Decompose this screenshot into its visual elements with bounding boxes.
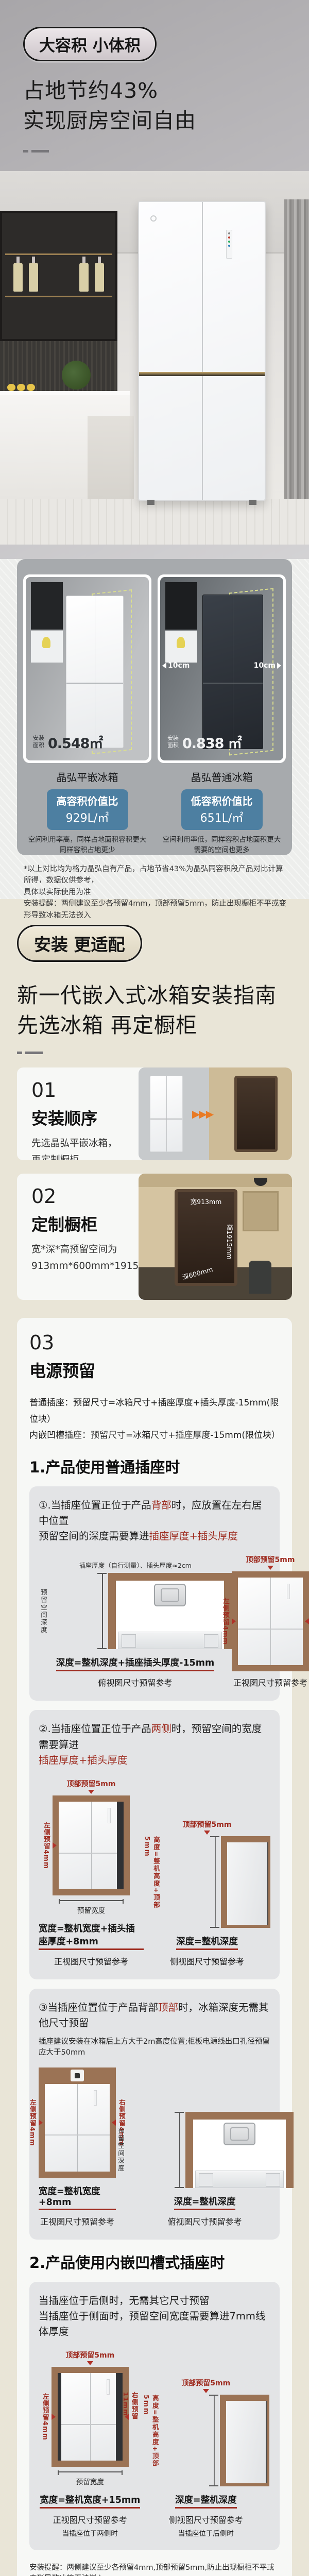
niche-height-label: 高1915mm — [225, 1224, 234, 1260]
step2-image: 宽913mm 高1915mm 深600mm — [139, 1174, 292, 1300]
cabinet-front-view: 左侧预留4mm 右侧预留4mm — [39, 2067, 116, 2178]
cabinet-niche — [234, 1076, 278, 1152]
triangle-marker-icon — [305, 1618, 309, 1624]
case3-note: 插座建议安装在冰箱后上方大于2m高度位置;柜板电源线出口孔径预留应大于50mm — [39, 2036, 270, 2057]
compare-section: 安装 面积 0.548㎡ 晶弘平嵌冰箱 高容积价值比 929L/㎡ 空间利用率高… — [0, 559, 309, 899]
triangle-down-icon — [87, 2361, 93, 2365]
cabinet-front-view: 左侧预留4mm 右侧预留11mm — [51, 2367, 129, 2467]
hero-title-line1: 占地节约43% — [23, 76, 286, 106]
socket-icon — [154, 1584, 186, 1606]
step-card-02: 02 定制橱柜 宽*深*高预留空间为 913mm*600mm*1915mm 宽9… — [17, 1174, 292, 1300]
top-gap-label: 顶部预留5mm — [67, 1778, 116, 1789]
depth-formula: 深度=整机深度+插座插头厚度-15mm — [56, 1656, 214, 1671]
cabinet-top-view — [185, 2112, 294, 2188]
top-gap-label: 顶部预留5mm — [246, 1554, 295, 1565]
socket-case-4: 当插座位于后侧时，无需其它尺寸预留 当插座位于侧面时，预留空间宽度需要算进7mm… — [29, 2282, 280, 2551]
socket-thickness-note: 插座厚度（自行测量）、插头厚度≈2cm — [79, 1560, 192, 1570]
width-formula: 宽度=整机宽度+8mm — [39, 2184, 116, 2210]
kitchen-photo — [0, 171, 309, 545]
compare-left-panel: 安装 面积 0.548㎡ — [23, 574, 151, 763]
kitchen-island — [0, 391, 130, 499]
depth-formula: 深度=整机深度 — [174, 2195, 236, 2210]
fridge-thumbnail — [150, 1076, 183, 1152]
top-view-diagram: 插座厚度（自行测量）、插头厚度≈2cm 预留空间深度 深度=整机深度+插座插头厚… — [39, 1560, 232, 1688]
triangle-marker-icon — [39, 2120, 43, 2126]
hero-badge: 大容积 小体积 — [23, 27, 157, 61]
left-gap-label: 左侧预留4mm — [221, 1598, 231, 1646]
front-view-diagram: 顶部预留5mm 左侧预留4mm 右侧预留11mm 预留宽度 宽度=整机宽度+15… — [40, 2350, 140, 2538]
fruit-bowl — [7, 384, 35, 391]
compare-right-name: 晶弘普通冰箱 — [191, 769, 253, 784]
install-title-line2: 先选冰箱 再定橱柜 — [17, 1010, 292, 1040]
kitchen-shelf — [243, 1191, 279, 1231]
compare-footnote: *以上对比均为格力晶弘自有产品，占地节省43%为晶弘同容积段产品对比计算所得，数… — [17, 855, 292, 921]
cabinet-top-view — [108, 1573, 232, 1649]
top-gap-label: 顶部预留5mm — [181, 2378, 230, 2388]
brand-logo-icon — [150, 215, 157, 222]
case2-line2: 插座厚度+插头厚度 — [39, 1753, 270, 1768]
step1-number: 01 — [31, 1079, 139, 1101]
front-view-diagram: 左侧预留4mm 右侧预留4mm 宽度=整机宽度+8mm 正视图尺寸预留参考 — [39, 2067, 116, 2227]
step-card-03: 03 电源预留 普通插座：预留尺寸=冰箱尺寸+插座厚度+插头厚度-15mm(限位… — [17, 1318, 292, 2576]
footnote-line1: *以上对比均为格力晶弘自有产品，占地节省43%为晶弘同容积段产品对比计算所得，数… — [24, 863, 287, 887]
kitchen-curtain — [284, 199, 309, 545]
step3-title: 电源预留 — [29, 1358, 280, 1382]
flower-icon — [42, 637, 50, 648]
install-badge: 安装 更适配 — [17, 925, 142, 962]
step1-body: 先选晶弘平嵌冰箱， 再定制橱柜 — [31, 1136, 139, 1160]
right-gap-label: 右侧预留11mm — [122, 2392, 140, 2442]
case3-line1: ③当插座位置位于产品背部顶部时，冰箱深度无需其他尺寸预留 — [39, 2000, 270, 2031]
compare-left-column: 安装 面积 0.548㎡ 晶弘平嵌冰箱 高容积价值比 929L/㎡ 空间利用率高… — [23, 574, 151, 855]
width-formula: 宽度=整机宽度+15mm — [40, 2493, 140, 2509]
normal-fridge-image — [202, 595, 263, 749]
step-card-01: 01 安装顺序 先选晶弘平嵌冰箱， 再定制橱柜 ▶▶▶ — [17, 1067, 292, 1160]
formula-normal-socket: 普通插座：预留尺寸=冰箱尺寸+插座厚度+插头厚度-15mm(限位块） — [29, 1395, 280, 1428]
kitchen-floor — [0, 499, 309, 545]
compare-card: 安装 面积 0.548㎡ 晶弘平嵌冰箱 高容积价值比 929L/㎡ 空间利用率高… — [17, 559, 292, 855]
front-view-diagram: 顶部预留5mm 左侧预留4mm 预留宽度 宽度=整机宽度+插头插座厚度+8mm … — [39, 1778, 144, 1967]
triangle-down-icon — [204, 1831, 210, 1835]
front-view-diagram: 顶部预留5mm 左侧预留4mm 右侧预留4mm 正视图尺寸预留参考 — [232, 1554, 309, 1688]
formula-recessed-socket: 内嵌凹槽插座：预留尺寸=冰箱尺寸+插座厚度-15mm(限位块） — [29, 1428, 280, 1444]
cabinet-block — [165, 582, 197, 630]
step2-body: 宽*深*高预留空间为 913mm*600mm*1915mm — [31, 1242, 139, 1274]
heading-recessed-socket: 2.产品使用内嵌凹槽式插座时 — [29, 2251, 280, 2273]
forward-arrows-icon: ▶▶▶ — [192, 1108, 213, 1120]
install-reminder: 安装提醒：两侧建议至少各预留4mm,顶部预留5mm,防止出现橱柜不平或变形导致冰… — [29, 2562, 280, 2576]
depth-bracket: 预留空间深度 — [39, 1573, 103, 1649]
arrow-right-icon — [277, 663, 281, 669]
step3-number: 03 — [29, 1331, 280, 1354]
divider-dash — [17, 1052, 292, 1054]
fridge-product-photo — [138, 201, 266, 501]
hero-title: 占地节约43% 实现厨房空间自由 — [23, 76, 286, 135]
install-area-left: 安装 面积 0.548㎡ — [33, 732, 102, 752]
socket-case-2: ②.当插座位置正位于产品两侧时，预留空间的宽度需要算进 插座厚度+插头厚度 顶部… — [29, 1710, 280, 1979]
embedded-fridge-image — [66, 596, 124, 748]
compare-left-name: 晶弘平嵌冰箱 — [57, 769, 118, 784]
left-gap-label: 左侧预留4mm — [28, 2099, 38, 2146]
socket-formulas: 普通插座：预留尺寸=冰箱尺寸+插座厚度+插头厚度-15mm(限位块） 内嵌凹槽插… — [29, 1395, 280, 1444]
gap-left-label: 10cm — [162, 662, 190, 670]
step1-image: ▶▶▶ — [139, 1067, 292, 1160]
step1-title: 安装顺序 — [31, 1106, 139, 1129]
height-bracket: 高度=整机高度+顶部5mm — [144, 1836, 216, 1928]
case1-line1: ①.当插座位置正位于产品背部时，应放置在左右居中位置 — [39, 1498, 270, 1529]
install-area-right: 安装 面积 0.838 ㎡ — [167, 732, 242, 752]
socket-case-3: ③当插座位置位于产品背部顶部时，冰箱深度无需其他尺寸预留 插座建议安装在冰箱后上… — [29, 1989, 280, 2239]
compare-right-column: 10cm 10cm 安装 面积 0.838 ㎡ 晶弘普通冰箱 低容积价值比 65… — [158, 574, 286, 855]
cabinet-side-view — [221, 1836, 270, 1928]
top-view-diagram: 预留空间深度 深度=整机深度 俯视图尺寸预留参考 — [116, 2112, 294, 2227]
triangle-down-icon — [88, 1790, 94, 1794]
left-gap-label: 左侧预留4mm — [42, 1822, 51, 1869]
cabinet-block — [31, 582, 63, 630]
triangle-marker-icon — [53, 1842, 57, 1849]
gap-right-label: 10cm — [254, 662, 281, 670]
niche-width-label: 宽913mm — [178, 1196, 234, 1206]
divider-dash — [23, 150, 286, 152]
fridge-control-panel — [226, 230, 232, 259]
depth-bracket: 预留空间深度 — [116, 2112, 180, 2188]
case4-line1: 当插座位于后侧时，无需其它尺寸预留 — [39, 2293, 270, 2309]
flower-icon — [177, 637, 185, 648]
case1-line2: 预留空间的深度需要算进插座厚度+插头厚度 — [39, 1529, 270, 1544]
compare-left-badge: 高容积价值比 929L/㎡ — [47, 789, 128, 830]
triangle-down-icon — [267, 1566, 273, 1570]
triangle-marker-icon — [112, 2120, 116, 2126]
triangle-down-icon — [203, 2389, 209, 2393]
shelf-block — [31, 631, 63, 663]
width-formula: 宽度=整机宽度+插头插座厚度+8mm — [39, 1922, 144, 1950]
cabinet-front-view: 左侧预留4mm 右侧预留4mm — [232, 1571, 309, 1671]
depth-formula: 深度=整机深度 — [176, 1935, 238, 1950]
fridge-back-view — [118, 1632, 222, 1649]
cabinet-front-view: 左侧预留4mm — [53, 1795, 130, 1895]
top-gap-label: 顶部预留5mm — [183, 1819, 232, 1829]
case4-line2: 当插座位于侧面时，预留空间宽度需要算进7mm线体厚度 — [39, 2309, 270, 2340]
socket-icon — [224, 2123, 255, 2145]
install-title-line1: 新一代嵌入式冰箱安装指南 — [17, 980, 292, 1010]
heading-normal-socket: 1.产品使用普通插座时 — [29, 1455, 280, 1477]
compare-right-desc: 空间利用率低，同样容积占地面积更大 需要的空间也更多 — [163, 835, 281, 856]
hero-section: 大容积 小体积 占地节约43% 实现厨房空间自由 — [0, 0, 309, 559]
depth-formula: 深度=整机深度 — [175, 2493, 237, 2509]
hero-title-line2: 实现厨房空间自由 — [23, 106, 286, 135]
install-title: 新一代嵌入式冰箱安装指南 先选冰箱 再定橱柜 — [17, 980, 292, 1040]
kitchen-wall-cabinet — [0, 211, 117, 341]
chair-silhouette — [249, 1261, 271, 1294]
shelf-block — [165, 631, 197, 663]
case2-line1: ②.当插座位置正位于产品两侧时，预留空间的宽度需要算进 — [39, 1721, 270, 1752]
niche-depth-label: 深600mm — [181, 1264, 214, 1282]
footnote-line2: 具体以实际使用为准 — [24, 887, 287, 898]
height-bracket: 高度=整机高度+顶部5mm — [143, 2395, 215, 2486]
triangle-marker-icon — [232, 1618, 236, 1624]
width-bracket — [59, 1900, 124, 1904]
left-gap-label: 左侧预留4mm — [41, 2393, 50, 2441]
install-section: 安装 更适配 新一代嵌入式冰箱安装指南 先选冰箱 再定橱柜 01 安装顺序 先选… — [0, 899, 309, 2576]
top-gap-label: 顶部预留5mm — [65, 2350, 114, 2360]
compare-right-badge: 低容积价值比 651L/㎡ — [181, 789, 263, 830]
step2-number: 02 — [31, 1185, 139, 1208]
footnote-line3: 安装提醒：两侧建议至少各预留4mm，顶部预留5mm，防止出现橱柜不平或变形导致冰… — [24, 898, 287, 921]
socket-column — [117, 1802, 124, 1889]
socket-strip-left — [58, 2373, 61, 2461]
cabinet-side-view — [220, 2395, 269, 2486]
cabinet-niche-dimensions: 宽913mm 高1915mm 深600mm — [175, 1189, 237, 1286]
socket-icon — [71, 2070, 84, 2081]
step2-title: 定制橱柜 — [31, 1212, 139, 1235]
width-bracket — [58, 2471, 123, 2475]
arrow-left-icon — [162, 663, 166, 669]
fridge-back-view — [195, 2171, 284, 2188]
side-view-diagram: 顶部预留5mm 高度=整机高度+顶部5mm 深度=整机深度 侧视图尺寸预留参考 … — [143, 2378, 269, 2538]
triangle-marker-icon — [51, 2414, 56, 2420]
socket-case-1: ①.当插座位置正位于产品背部时，应放置在左右居中位置 预留空间的深度需要算进插座… — [29, 1486, 280, 1701]
compare-right-panel: 10cm 10cm 安装 面积 0.838 ㎡ — [158, 574, 286, 763]
compare-left-desc: 空间利用率高，同样占地面积容积更大 同样容积占地更少 — [28, 835, 147, 856]
side-view-diagram: 顶部预留5mm 高度=整机高度+顶部5mm 深度=整机深度 侧视图尺寸预留参考 — [144, 1819, 270, 1967]
